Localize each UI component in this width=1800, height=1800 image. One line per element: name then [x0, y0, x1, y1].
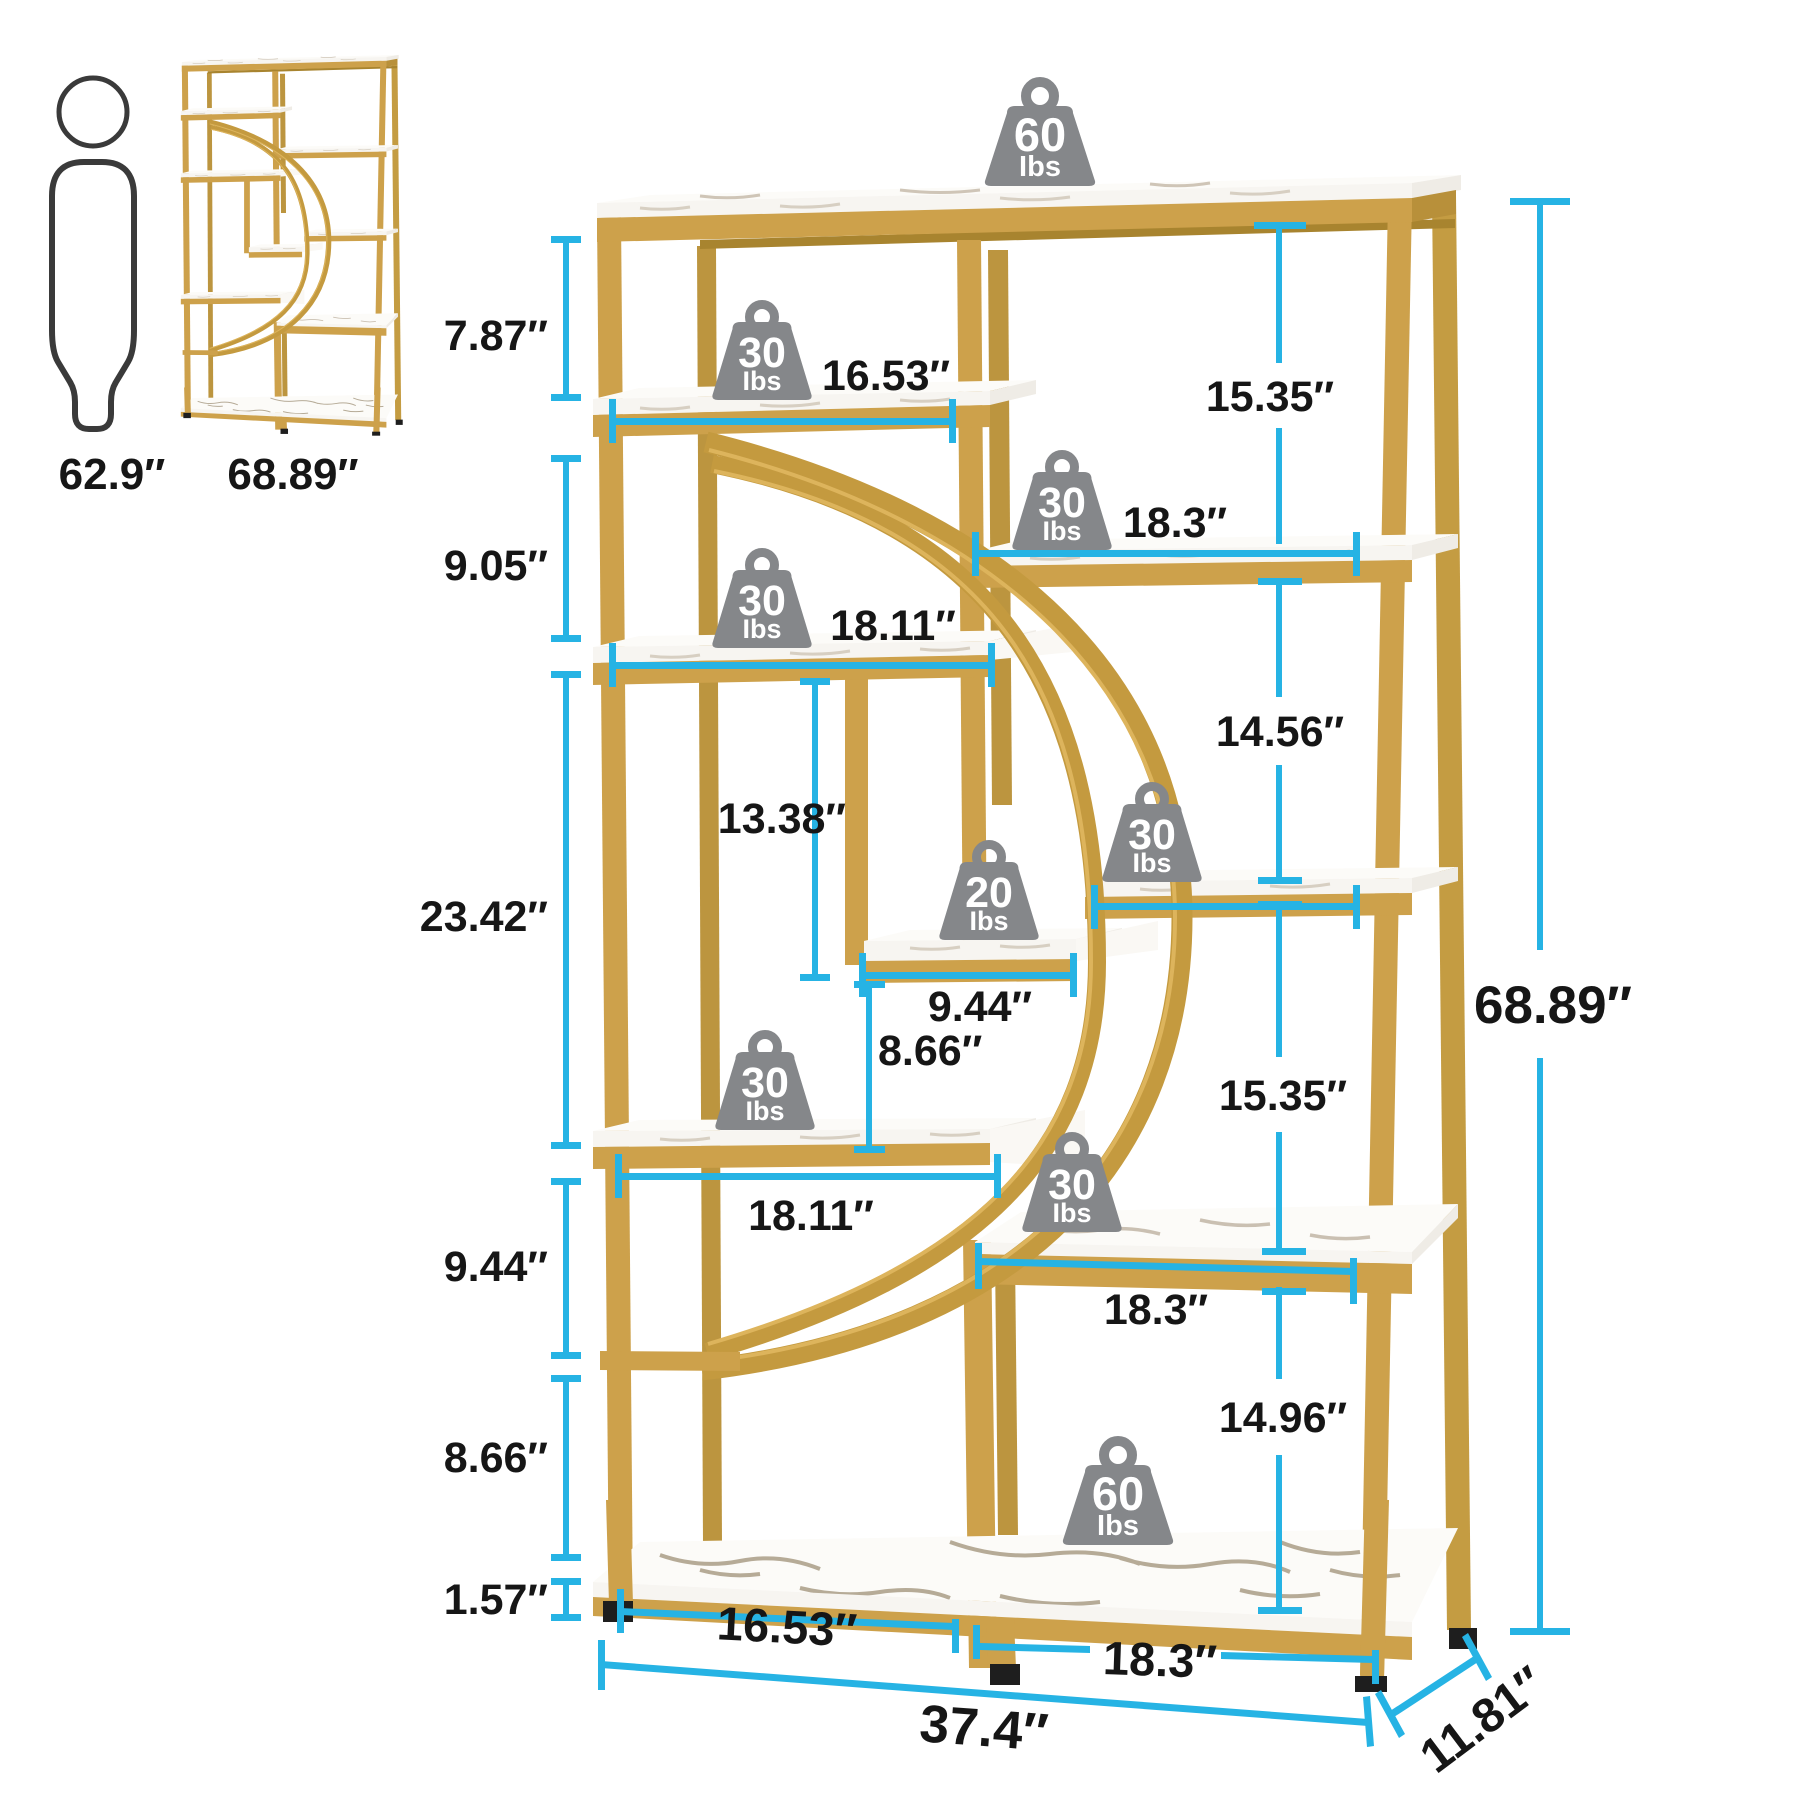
svg-text:18.11″: 18.11″ [830, 602, 956, 650]
svg-text:18.3″: 18.3″ [1102, 1631, 1218, 1688]
svg-text:62.9″: 62.9″ [59, 450, 166, 499]
svg-text:15.35″: 15.35″ [1206, 373, 1334, 421]
svg-text:68.89″: 68.89″ [1474, 976, 1632, 1035]
svg-text:1.57″: 1.57″ [444, 1576, 548, 1624]
svg-text:16.53″: 16.53″ [822, 352, 950, 400]
svg-text:8.66″: 8.66″ [444, 1434, 548, 1482]
svg-text:14.56″: 14.56″ [1216, 708, 1344, 756]
svg-text:18.3″: 18.3″ [1104, 1286, 1208, 1334]
svg-text:18.11″: 18.11″ [748, 1192, 874, 1240]
svg-text:37.4″: 37.4″ [918, 1694, 1051, 1762]
svg-text:9.05″: 9.05″ [444, 542, 548, 590]
svg-text:8.66″: 8.66″ [878, 1027, 982, 1075]
svg-text:9.44″: 9.44″ [928, 983, 1032, 1031]
svg-text:18.3″: 18.3″ [1123, 499, 1227, 547]
svg-text:13.38″: 13.38″ [718, 795, 846, 843]
svg-text:9.44″: 9.44″ [444, 1243, 548, 1291]
svg-text:68.89″: 68.89″ [227, 450, 358, 499]
svg-text:15.35″: 15.35″ [1219, 1072, 1347, 1120]
svg-text:14.96″: 14.96″ [1219, 1394, 1347, 1442]
svg-text:23.42″: 23.42″ [420, 893, 548, 941]
svg-text:7.87″: 7.87″ [444, 312, 548, 360]
svg-text:16.53″: 16.53″ [716, 1596, 859, 1656]
